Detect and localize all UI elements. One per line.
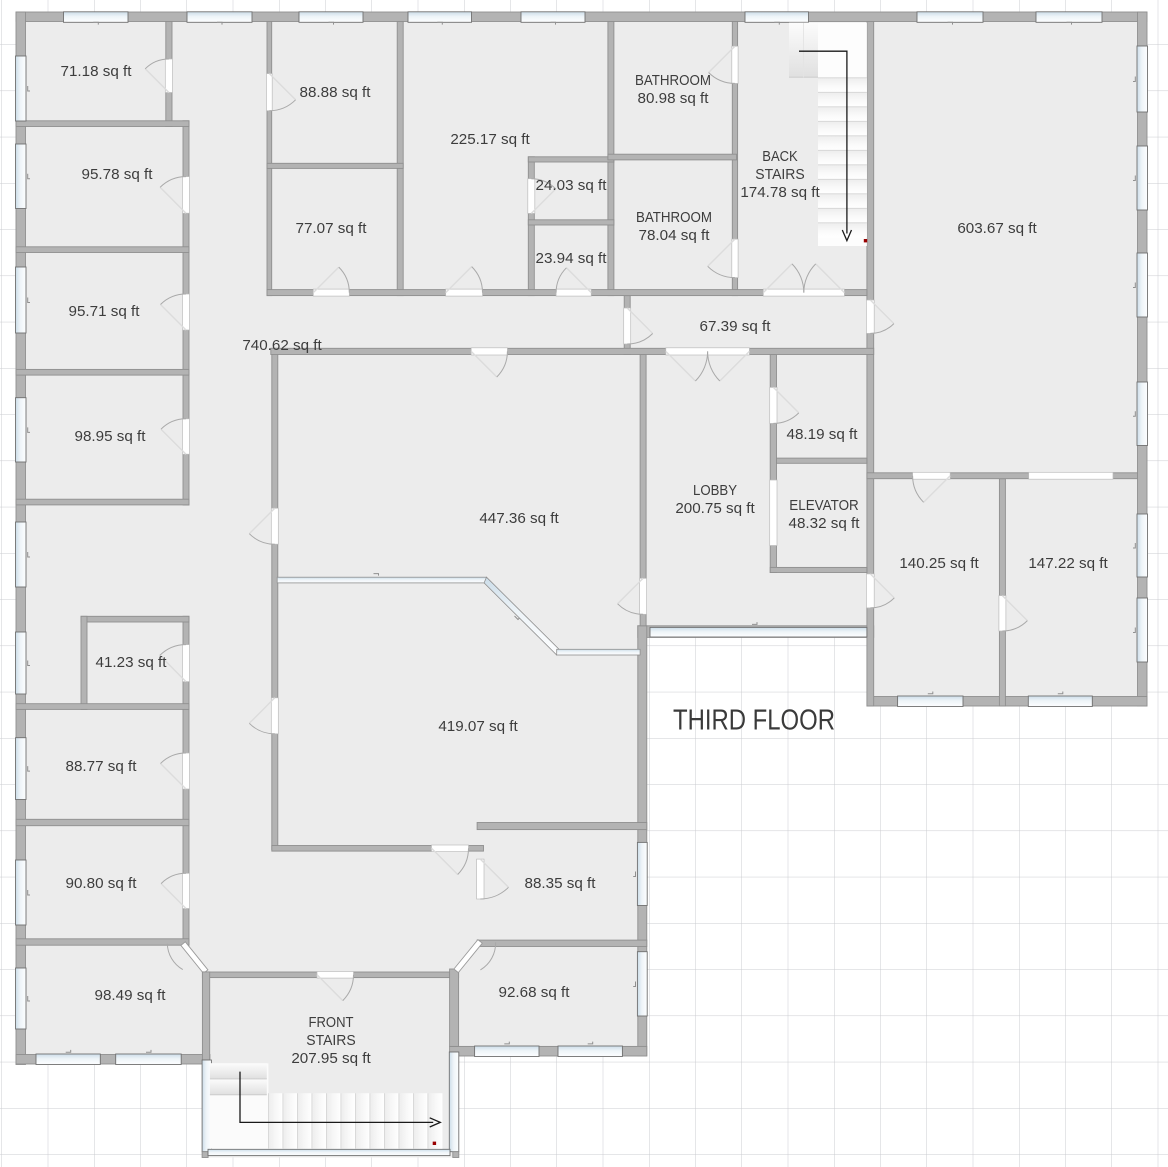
svg-text:603.67 sq ft: 603.67 sq ft bbox=[957, 220, 1037, 237]
svg-text:225.17 sq ft: 225.17 sq ft bbox=[450, 131, 530, 148]
svg-text:FRONT: FRONT bbox=[309, 1014, 354, 1031]
svg-text:95.71 sq ft: 95.71 sq ft bbox=[69, 303, 141, 320]
svg-text:48.19 sq ft: 48.19 sq ft bbox=[787, 426, 859, 443]
svg-text:174.78 sq ft: 174.78 sq ft bbox=[740, 184, 820, 201]
svg-text:24.03 sq ft: 24.03 sq ft bbox=[536, 177, 608, 194]
svg-text:71.18 sq ft: 71.18 sq ft bbox=[61, 63, 133, 80]
svg-text:STAIRS: STAIRS bbox=[755, 166, 805, 183]
svg-text:LOBBY: LOBBY bbox=[693, 482, 737, 499]
svg-text:THIRD FLOOR: THIRD FLOOR bbox=[673, 705, 835, 737]
svg-text:447.36 sq ft: 447.36 sq ft bbox=[479, 510, 559, 527]
svg-text:ELEVATOR: ELEVATOR bbox=[789, 497, 859, 514]
svg-text:419.07 sq ft: 419.07 sq ft bbox=[438, 718, 518, 735]
svg-text:92.68 sq ft: 92.68 sq ft bbox=[499, 984, 571, 1001]
svg-text:140.25 sq ft: 140.25 sq ft bbox=[899, 555, 979, 572]
svg-text:88.77 sq ft: 88.77 sq ft bbox=[66, 758, 138, 775]
svg-text:200.75 sq ft: 200.75 sq ft bbox=[675, 500, 755, 517]
svg-text:BATHROOM: BATHROOM bbox=[635, 72, 711, 89]
svg-text:78.04 sq ft: 78.04 sq ft bbox=[639, 227, 711, 244]
svg-text:147.22 sq ft: 147.22 sq ft bbox=[1028, 555, 1108, 572]
svg-text:98.95 sq ft: 98.95 sq ft bbox=[75, 428, 147, 445]
svg-text:80.98 sq ft: 80.98 sq ft bbox=[638, 90, 710, 107]
svg-text:41.23 sq ft: 41.23 sq ft bbox=[96, 654, 168, 671]
svg-text:95.78 sq ft: 95.78 sq ft bbox=[82, 166, 154, 183]
svg-text:88.35 sq ft: 88.35 sq ft bbox=[525, 875, 597, 892]
svg-text:STAIRS: STAIRS bbox=[306, 1032, 356, 1049]
svg-text:BATHROOM: BATHROOM bbox=[636, 209, 712, 226]
svg-text:23.94 sq ft: 23.94 sq ft bbox=[536, 250, 608, 267]
svg-text:207.95 sq ft: 207.95 sq ft bbox=[291, 1050, 371, 1067]
svg-text:90.80 sq ft: 90.80 sq ft bbox=[66, 875, 138, 892]
svg-text:67.39 sq ft: 67.39 sq ft bbox=[700, 318, 772, 335]
svg-text:88.88 sq ft: 88.88 sq ft bbox=[300, 84, 372, 101]
svg-text:77.07 sq ft: 77.07 sq ft bbox=[296, 220, 368, 237]
svg-text:98.49 sq ft: 98.49 sq ft bbox=[95, 987, 167, 1004]
svg-text:740.62 sq ft: 740.62 sq ft bbox=[242, 337, 322, 354]
svg-text:BACK: BACK bbox=[762, 148, 798, 165]
svg-text:48.32 sq ft: 48.32 sq ft bbox=[789, 515, 861, 532]
